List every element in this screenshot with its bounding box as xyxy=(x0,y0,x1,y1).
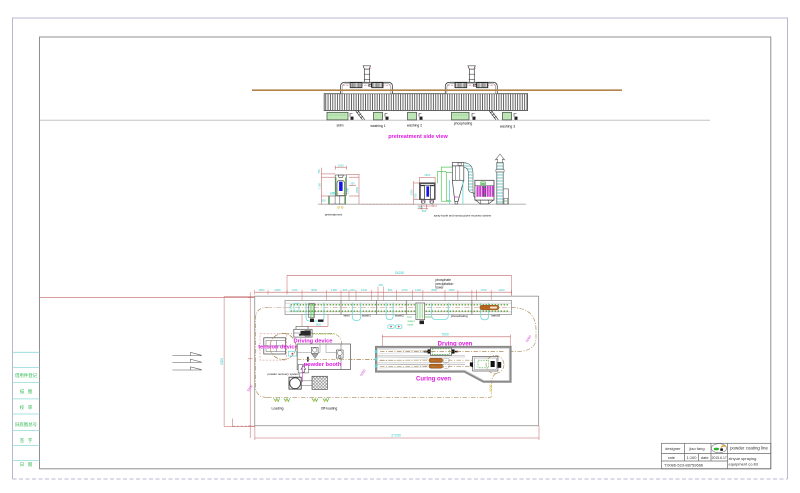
svg-text:2500: 2500 xyxy=(355,187,359,193)
svg-text:powder booth: powder booth xyxy=(304,362,342,368)
svg-text:washing 3: washing 3 xyxy=(500,125,515,129)
svg-text:1700: 1700 xyxy=(401,288,408,292)
svg-text:旧底图总号: 旧底图总号 xyxy=(15,421,38,428)
svg-text:签 字: 签 字 xyxy=(20,437,33,443)
svg-text:750: 750 xyxy=(317,169,321,174)
svg-text:300: 300 xyxy=(454,195,459,199)
svg-text:2350: 2350 xyxy=(410,189,414,195)
svg-text:xinyue spraying: xinyue spraying xyxy=(729,456,757,461)
svg-text:pretreatment side view: pretreatment side view xyxy=(388,134,448,140)
svg-text:900: 900 xyxy=(343,288,348,292)
svg-text:1200: 1200 xyxy=(415,288,422,292)
svg-text:1500: 1500 xyxy=(258,288,265,292)
svg-text:750: 750 xyxy=(332,191,337,195)
svg-text:Driving device: Driving device xyxy=(294,338,333,344)
svg-text:1750: 1750 xyxy=(414,193,418,199)
svg-text:rate: rate xyxy=(668,455,676,460)
svg-text:tension device: tension device xyxy=(258,344,298,350)
svg-text:skim: skim xyxy=(344,313,351,317)
svg-text:washing 2: washing 2 xyxy=(407,124,422,128)
svg-text:2250: 2250 xyxy=(274,288,281,292)
svg-text:800: 800 xyxy=(388,288,393,292)
svg-text:1700: 1700 xyxy=(480,288,487,292)
svg-text:T:0086-523-88759666: T:0086-523-88759666 xyxy=(664,463,704,468)
svg-text:pretreatment: pretreatment xyxy=(325,212,343,216)
svg-text:tower: tower xyxy=(436,286,445,290)
svg-text:5000: 5000 xyxy=(220,358,224,365)
svg-text:Off-loading: Off-loading xyxy=(321,407,338,411)
svg-text:450: 450 xyxy=(419,205,424,209)
svg-text:powder coating line: powder coating line xyxy=(730,445,768,450)
svg-text:phosphating: phosphating xyxy=(454,122,473,126)
svg-text:借用件登记: 借用件登记 xyxy=(15,372,38,379)
svg-text:tank: tank xyxy=(408,323,414,327)
svg-text:1450: 1450 xyxy=(331,288,338,292)
svg-text:1500: 1500 xyxy=(448,288,455,292)
svg-text:1700: 1700 xyxy=(291,288,298,292)
svg-text:3000: 3000 xyxy=(311,288,318,292)
svg-text:5000: 5000 xyxy=(489,385,493,393)
svg-text:900: 900 xyxy=(350,288,355,292)
svg-text:phosphating: phosphating xyxy=(451,314,468,318)
svg-text:2200: 2200 xyxy=(498,288,505,292)
svg-text:500: 500 xyxy=(321,199,326,203)
svg-text:wash3: wash3 xyxy=(491,314,500,318)
svg-text:430: 430 xyxy=(378,283,383,287)
svg-text:jiao fang: jiao fang xyxy=(688,446,704,451)
svg-text:spray booth and monocyclone re: spray booth and monocyclone recovery sys… xyxy=(434,214,492,218)
svg-text:Curing oven: Curing oven xyxy=(416,376,451,382)
svg-text:equipment co.ltd: equipment co.ltd xyxy=(729,462,758,467)
svg-text:校 审: 校 审 xyxy=(20,404,33,411)
svg-text:7500: 7500 xyxy=(441,333,449,337)
svg-text:600: 600 xyxy=(316,322,321,326)
svg-text:Loading: Loading xyxy=(271,407,283,411)
svg-text:wash2: wash2 xyxy=(395,314,404,318)
svg-text:1300: 1300 xyxy=(289,304,293,311)
svg-text:描 图: 描 图 xyxy=(20,388,33,395)
svg-text:1000: 1000 xyxy=(338,163,344,167)
svg-text:1:100: 1:100 xyxy=(686,455,697,460)
svg-text:wash1: wash1 xyxy=(362,314,371,318)
svg-text:350: 350 xyxy=(350,182,355,186)
svg-text:date: date xyxy=(701,455,710,460)
svg-text:skim: skim xyxy=(337,124,344,128)
svg-text:2015.6.17: 2015.6.17 xyxy=(712,456,727,460)
svg-text:washing 1: washing 1 xyxy=(370,124,385,128)
svg-text:1750: 1750 xyxy=(318,183,322,189)
svg-text:1500: 1500 xyxy=(424,173,430,177)
svg-text:27250: 27250 xyxy=(391,434,401,438)
svg-text:powder recovery system: powder recovery system xyxy=(268,372,300,376)
svg-text:1445: 1445 xyxy=(361,288,368,292)
svg-text:designer: designer xyxy=(665,446,681,451)
svg-text:24250: 24250 xyxy=(395,271,405,275)
svg-text:800: 800 xyxy=(422,209,427,213)
